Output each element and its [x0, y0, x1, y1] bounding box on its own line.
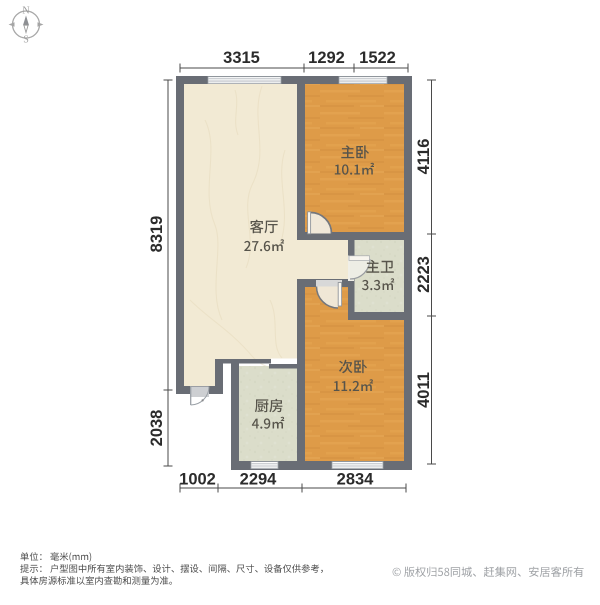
svg-text:2834: 2834	[337, 471, 375, 489]
svg-text:4011: 4011	[415, 372, 433, 408]
svg-text:1522: 1522	[359, 49, 396, 67]
svg-text:2038: 2038	[148, 410, 166, 447]
svg-text:2294: 2294	[240, 471, 278, 489]
svg-text:1002: 1002	[179, 471, 216, 489]
svg-text:2223: 2223	[415, 256, 433, 293]
svg-text:3315: 3315	[223, 49, 260, 67]
svg-text:4116: 4116	[415, 139, 433, 175]
svg-text:8319: 8319	[148, 216, 166, 253]
svg-text:N: N	[22, 6, 29, 17]
svg-text:1292: 1292	[308, 49, 345, 67]
svg-text:S: S	[23, 35, 29, 46]
